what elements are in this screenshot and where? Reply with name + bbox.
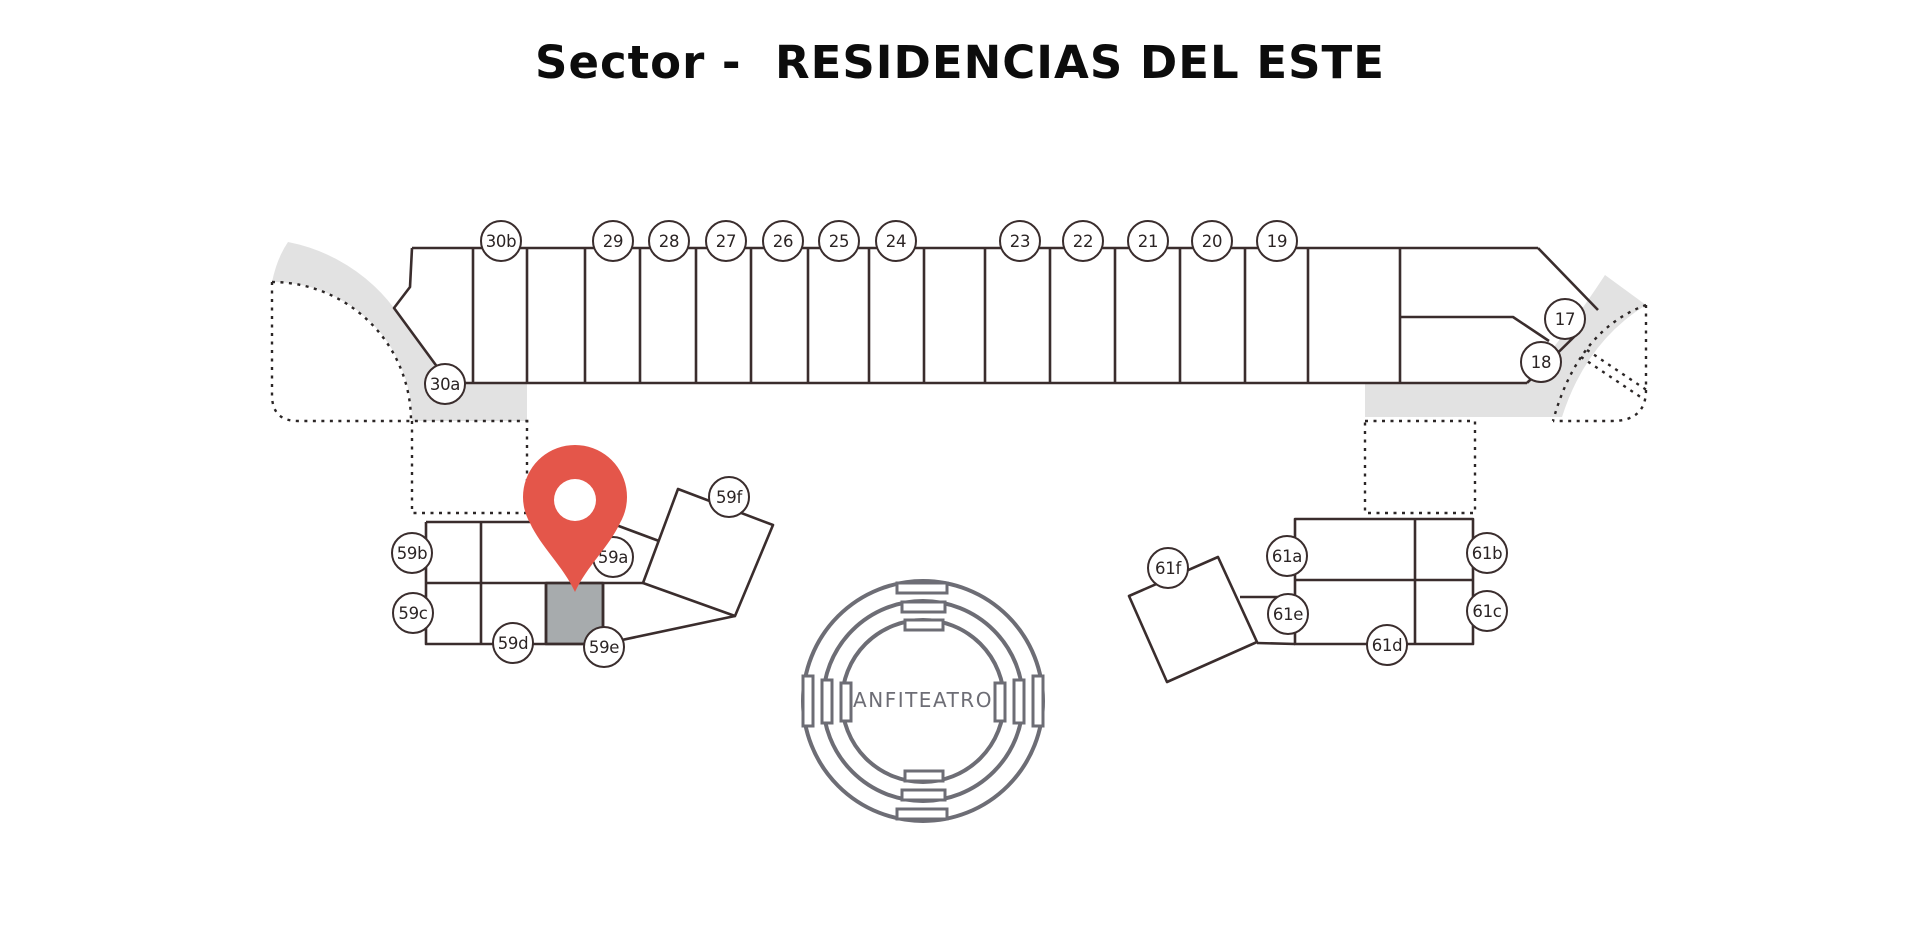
lot-marker-26: 26 [762,220,804,262]
lot-marker-61d: 61d [1366,624,1408,666]
lot-marker-27: 27 [705,220,747,262]
lot-marker-25: 25 [818,220,860,262]
lot-marker-59d: 59d [492,622,534,664]
lot-marker-21: 21 [1127,220,1169,262]
lot-marker-59f: 59f [708,476,750,518]
lot-marker-61a: 61a [1266,535,1308,577]
site-plan-drawing [0,0,1920,944]
lot-marker-59e: 59e [583,626,625,668]
lot-59f-parcel [643,489,773,616]
amphitheater-label: ANFITEATRO [773,688,1073,712]
road-east [1365,275,1646,417]
lot-marker-61c: 61c [1466,590,1508,632]
lot-marker-59a: 59a [592,536,634,578]
lot-marker-18: 18 [1520,341,1562,383]
north-lot-row [394,248,1598,383]
lot-marker-23: 23 [999,220,1041,262]
lot-marker-29: 29 [592,220,634,262]
lot-marker-28: 28 [648,220,690,262]
lot-marker-61b: 61b [1466,532,1508,574]
lot-marker-22: 22 [1062,220,1104,262]
lot-marker-61e: 61e [1267,593,1309,635]
lot-marker-30a: 30a [424,363,466,405]
lot-marker-59c: 59c [392,592,434,634]
lot-marker-24: 24 [875,220,917,262]
lot-marker-17: 17 [1544,298,1586,340]
lot-marker-20: 20 [1191,220,1233,262]
lot-marker-30b: 30b [480,220,522,262]
lot-marker-59b: 59b [391,532,433,574]
lot-marker-61f: 61f [1147,547,1189,589]
lot-marker-19: 19 [1256,220,1298,262]
road-west [272,242,527,421]
sector-map: Sector - RESIDENCIAS DEL ESTE [0,0,1920,944]
